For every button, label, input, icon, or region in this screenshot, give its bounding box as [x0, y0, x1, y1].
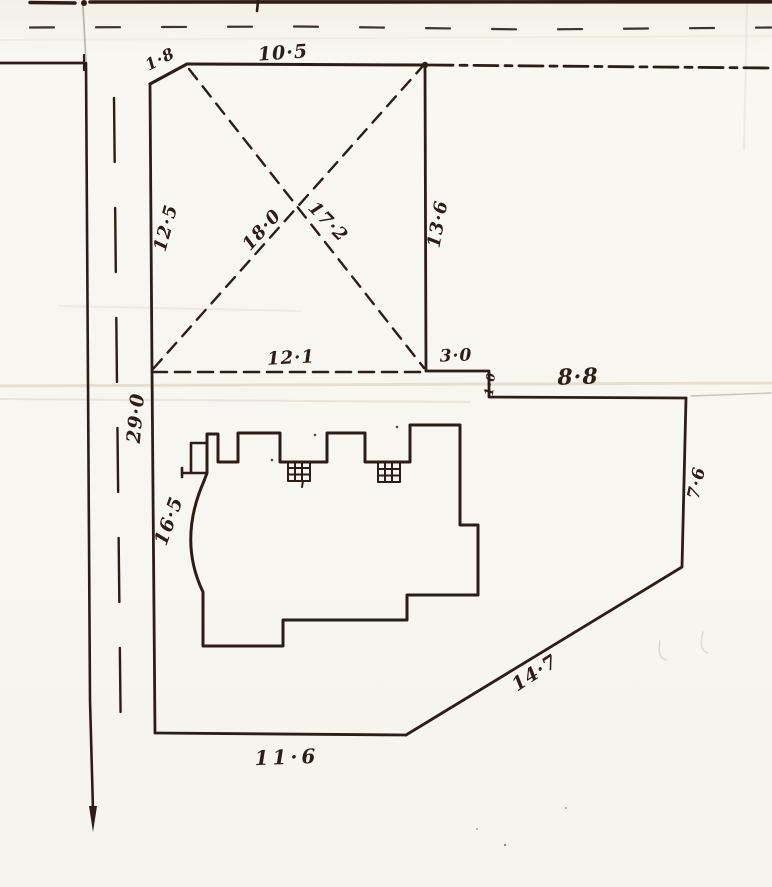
- sides-7-6-14-7-line: [406, 398, 686, 735]
- scan-top-edge: [30, 0, 771, 11]
- stair-grid-symbol: [378, 463, 400, 482]
- dash-dot-boundary-line: [429, 65, 771, 68]
- dust-speck: [565, 807, 567, 809]
- crease-line: [0, 383, 772, 386]
- upper-dashed-boundary-line: [30, 27, 771, 30]
- road-edge-faint-stub: [83, 6, 86, 62]
- building-outline: [191, 425, 478, 646]
- smudge-mark: [701, 632, 708, 653]
- ink-dot: [314, 434, 317, 437]
- side-11-6-line: [155, 733, 406, 735]
- dim-label-8-8: 8·8: [557, 363, 599, 390]
- road: [83, 6, 121, 832]
- stair-grid-symbol: [288, 462, 310, 487]
- dim-label-11-6: 11·6: [254, 744, 320, 770]
- side-13-6-line: [425, 65, 426, 371]
- building-left-annex: [182, 443, 207, 477]
- diagonal-17-2-dashed-line: [189, 69, 424, 368]
- road-arrowhead: [89, 806, 97, 832]
- smudge-mark: [659, 641, 666, 660]
- dim-label-12-1: 12·1: [267, 346, 316, 369]
- side-10-5-line: [187, 64, 425, 65]
- top-edge-tick: [257, 1, 258, 11]
- ink-dot: [396, 426, 399, 429]
- dim-label-29-0: 29·0: [123, 392, 149, 444]
- paper-creases: [0, 2, 772, 846]
- crease-line: [0, 36, 772, 40]
- dim-label-1-0: 1·0: [482, 371, 498, 396]
- diagonal-18-0-dashed-line: [153, 67, 422, 369]
- dim-label-10-5: 10·5: [257, 40, 309, 65]
- building-footprint: [182, 425, 478, 646]
- dust-speck: [476, 828, 478, 830]
- road-center-dashed-line: [114, 98, 121, 752]
- top-edge-blob: [81, 0, 87, 6]
- site-plan-drawing: [0, 0, 772, 887]
- dust-speck: [504, 844, 506, 846]
- crease-line: [691, 393, 771, 396]
- crease-line: [60, 306, 300, 311]
- upper-plot-quadrilateral: [150, 62, 428, 372]
- plot-left-boundary-line: [150, 84, 155, 733]
- neighbor-boundary: [0, 55, 84, 70]
- road-edge-line: [86, 63, 93, 810]
- crease-line: [744, 2, 747, 150]
- dim-label-3-0: 3·0: [439, 345, 472, 366]
- crease-line: [0, 399, 470, 402]
- scanned-site-plan-page: 1·8 10·5 12·5 18·0 17·2 13·6 12·1 3·0 1·…: [0, 0, 772, 887]
- ink-dot: [271, 459, 274, 462]
- top-edge-line: [30, 3, 75, 4]
